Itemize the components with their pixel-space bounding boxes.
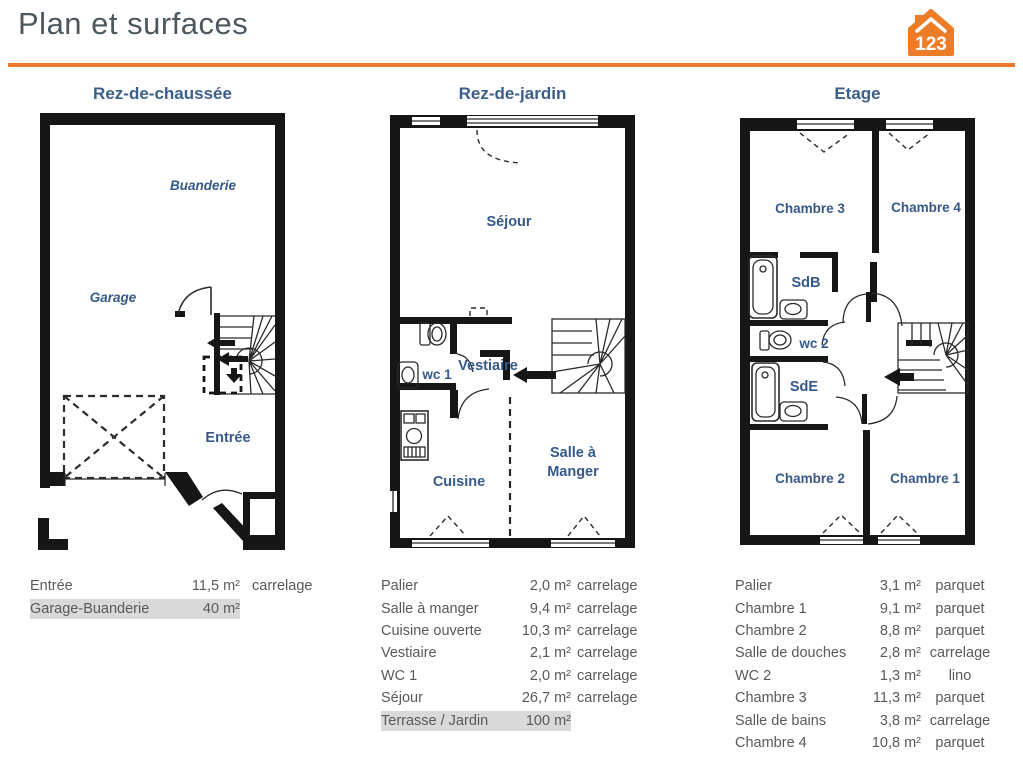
row-main: Palier 2,0 m² [381,576,571,596]
room-name: Vestiaire [381,645,509,661]
kitchen-unit-icon [401,411,428,460]
row-main: Cuisine ouverte 10,3 m² [381,621,571,641]
room-area: 11,5 m² [180,578,240,594]
room-name: Terrasse / Jardin [381,713,509,729]
room-area: 8,8 m² [863,623,921,639]
room-name: Entrée [30,578,180,594]
room-area: 2,0 m² [509,578,571,594]
room-area: 10,8 m² [863,735,921,751]
room-label-buanderie: Buanderie [170,178,237,193]
room-floor: carrelage [240,578,332,594]
table-row: Salle à manger 9,4 m² carrelage [381,597,649,619]
room-label-salle-a: Salle à [550,445,597,461]
house-123-logo-icon: 123 [905,7,957,59]
table-row: Chambre 4 10,8 m² parquet [735,732,999,754]
row-main: WC 2 1,3 m² [735,666,921,686]
room-area: 3,8 m² [863,713,921,729]
room-name: Chambre 4 [735,735,863,751]
room-label-chambre1: Chambre 1 [890,471,960,486]
room-area: 2,8 m² [863,645,921,661]
sink2-icon [780,402,807,421]
room-area: 9,1 m² [863,601,921,617]
row-main: Chambre 3 11,3 m² [735,688,921,708]
room-area: 3,1 m² [863,578,921,594]
table-row: Salle de douches 2,8 m² carrelage [735,642,999,664]
table-row: Chambre 1 9,1 m² parquet [735,597,999,619]
table-row: Vestiaire 2,1 m² carrelage [381,642,649,664]
room-label-manger: Manger [547,464,599,480]
logo-text: 123 [915,34,947,55]
row-main-highlighted: Garage-Buanderie 40 m² [30,599,240,619]
room-name: Cuisine ouverte [381,623,509,639]
room-name: Salle de douches [735,645,863,661]
room-area: 100 m² [509,713,571,729]
room-floor: carrelage [571,623,649,639]
room-area: 2,0 m² [509,668,571,684]
bathtub-icon [749,256,777,318]
room-label-chambre2: Chambre 2 [775,471,845,486]
room-name: WC 2 [735,668,863,684]
room-label-wc2: wc 2 [798,336,828,351]
room-area: 10,3 m² [509,623,571,639]
room-area: 26,7 m² [509,690,571,706]
sink-icon [780,300,807,319]
table-row: Garage-Buanderie 40 m² [30,597,332,619]
staircase [513,319,625,393]
stair-direction-arrow [884,368,914,386]
surface-table-etage: Palier 3,1 m² parquet Chambre 1 9,1 m² p… [735,575,999,754]
table-row: Chambre 3 11,3 m² parquet [735,687,999,709]
table-row: Palier 2,0 m² carrelage [381,575,649,597]
row-main: Chambre 2 8,8 m² [735,621,921,641]
room-area: 40 m² [180,601,240,617]
room-label-chambre3: Chambre 3 [775,201,845,216]
room-label-chambre4: Chambre 4 [891,200,961,215]
page: Plan et surfaces 123 Rez-de-chaussée Rez… [0,0,1023,768]
room-name: Palier [735,578,863,594]
room-label-sejour: Séjour [486,214,531,230]
garage-door-opening [65,473,165,486]
room-name: Salle de bains [735,713,863,729]
room-floor: parquet [921,690,999,706]
entry-recess [250,499,275,535]
room-floor: carrelage [571,668,649,684]
table-row: Salle de bains 3,8 m² carrelage [735,709,999,731]
room-label-sdb: SdB [792,275,821,291]
room-name: Chambre 2 [735,623,863,639]
row-main: Palier 3,1 m² [735,576,921,596]
table-row: WC 1 2,0 m² carrelage [381,665,649,687]
shower-tub-icon [752,363,779,421]
room-name: Palier [381,578,509,594]
page-title: Plan et surfaces [18,6,248,42]
room-name: Chambre 3 [735,690,863,706]
row-main: Salle de douches 2,8 m² [735,643,921,663]
table-row: Palier 3,1 m² parquet [735,575,999,597]
floorplan-jardin: Séjour wc 1 Vestiaire Cuisine Salle à Ma… [378,108,645,563]
row-main: Salle à manger 9,4 m² [381,599,571,619]
room-name: Garage-Buanderie [30,601,180,617]
room-floor: parquet [921,601,999,617]
floorplan-rdc: Buanderie Garage Entrée [30,108,295,563]
room-floor: carrelage [571,690,649,706]
table-row: Terrasse / Jardin 100 m² [381,709,649,731]
plan-title-rdc: Rez-de-chaussée [40,84,285,104]
parking-area-dashed [64,396,164,478]
room-floor: carrelage [571,578,649,594]
floorplan-etage: Chambre 3 Chambre 4 SdB wc 2 SdE Chambre… [728,108,985,563]
room-floor: parquet [921,735,999,751]
row-main: Salle de bains 3,8 m² [735,711,921,731]
row-main: Chambre 4 10,8 m² [735,733,921,753]
surface-table-jardin: Palier 2,0 m² carrelage Salle à manger 9… [381,575,649,732]
surface-table-rdc: Entrée 11,5 m² carrelage Garage-Buanderi… [30,575,332,620]
room-label-wc1: wc 1 [421,367,452,382]
row-main-highlighted: Terrasse / Jardin 100 m² [381,711,571,731]
staircase [884,323,968,393]
accent-divider [8,63,1015,67]
plan-title-jardin: Rez-de-jardin [390,84,635,104]
row-main: Vestiaire 2,1 m² [381,643,571,663]
room-floor: carrelage [921,713,999,729]
room-label-sde: SdE [790,379,819,395]
room-label-vestiaire: Vestiaire [458,358,518,374]
garage-door-arc [178,287,211,315]
table-row: Séjour 26,7 m² carrelage [381,687,649,709]
table-row: Cuisine ouverte 10,3 m² carrelage [381,620,649,642]
table-row: WC 2 1,3 m² lino [735,665,999,687]
room-area: 11,3 m² [863,690,921,706]
table-row: Entrée 11,5 m² carrelage [30,575,332,597]
room-area: 2,1 m² [509,645,571,661]
table-row: Chambre 2 8,8 m² parquet [735,620,999,642]
room-name: Chambre 1 [735,601,863,617]
toilet-icon [420,323,446,345]
room-label-cuisine: Cuisine [433,474,485,490]
room-area: 1,3 m² [863,668,921,684]
row-main: Séjour 26,7 m² [381,688,571,708]
room-label-garage: Garage [90,290,137,305]
entrance-door-arc [202,490,242,500]
room-area: 9,4 m² [509,601,571,617]
room-floor: parquet [921,623,999,639]
room-floor: carrelage [571,601,649,617]
row-main: Entrée 11,5 m² [30,576,240,596]
toilet-icon [760,331,791,350]
row-main: Chambre 1 9,1 m² [735,599,921,619]
room-name: Salle à manger [381,601,509,617]
row-main: WC 1 2,0 m² [381,666,571,686]
room-floor: carrelage [571,645,649,661]
room-name: Séjour [381,690,509,706]
room-floor: parquet [921,578,999,594]
room-name: WC 1 [381,668,509,684]
exterior-walls [390,115,635,548]
exterior-walls [38,113,285,550]
room-floor: lino [921,668,999,684]
stair-direction-arrow [513,367,556,383]
plan-title-etage: Etage [740,84,975,104]
room-label-entree: Entrée [205,430,250,446]
room-floor: carrelage [921,645,999,661]
